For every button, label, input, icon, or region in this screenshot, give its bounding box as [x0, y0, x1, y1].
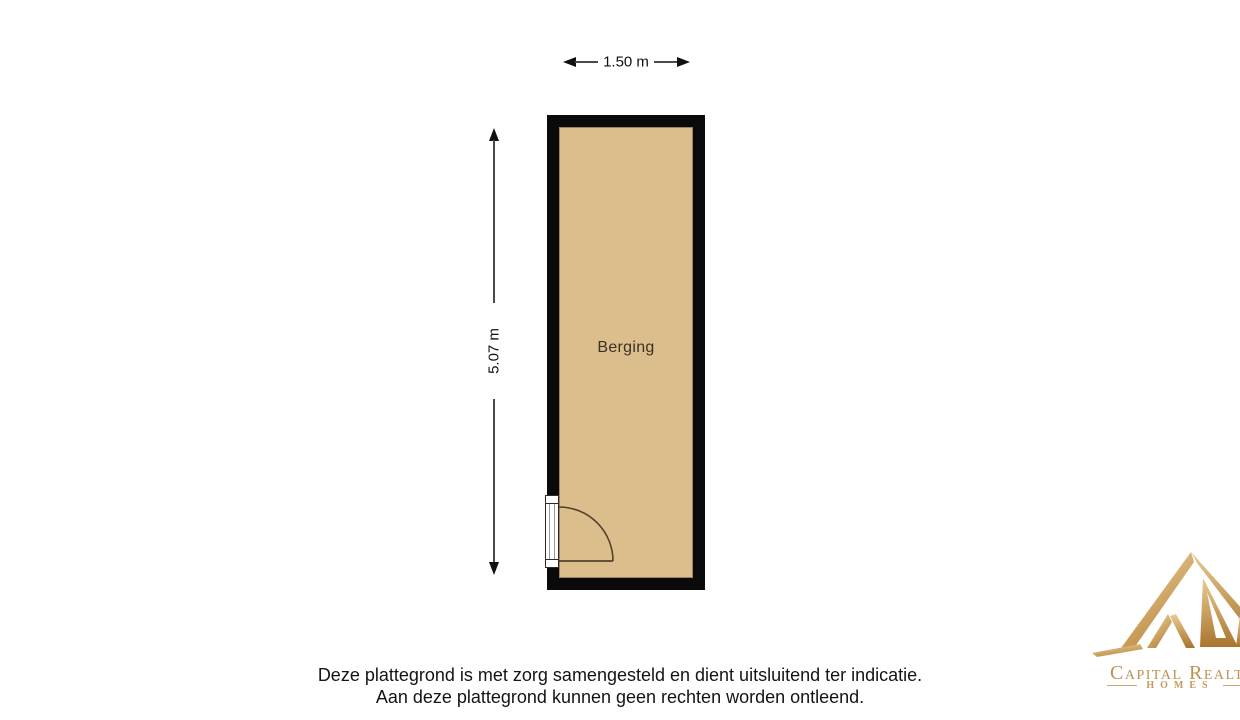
- dimension-arrow-down-icon: [489, 562, 499, 575]
- dimension-line-segment: [493, 399, 495, 562]
- dimension-line-segment: [575, 61, 598, 63]
- dimension-line-segment: [493, 140, 495, 303]
- door-frame-line: [549, 504, 550, 559]
- room-label: Berging: [597, 339, 654, 357]
- disclaimer-line-2: Aan deze plattegrond kunnen geen rechten…: [0, 686, 1240, 708]
- tagline-rule-left: [1107, 685, 1137, 686]
- brand-tagline-row: HOMES: [1095, 680, 1240, 691]
- disclaimer-line-1: Deze plattegrond is met zorg samengestel…: [0, 664, 1240, 686]
- door-frame-line: [554, 504, 555, 559]
- disclaimer: Deze plattegrond is met zorg samengestel…: [0, 664, 1240, 708]
- dimension-line-segment: [654, 61, 677, 63]
- floorplan-page: 1.50 m 5.07 m Berging Deze plattegrond i…: [0, 0, 1240, 720]
- width-dimension-label: 1.50 m: [603, 54, 649, 71]
- brand-logo: Capital Realties HOMES: [1080, 540, 1240, 710]
- brand-tagline: HOMES: [1146, 680, 1213, 691]
- door-frame-cap: [546, 496, 558, 504]
- height-dimension-label: 5.07 m: [486, 328, 503, 374]
- door-frame-cap: [546, 559, 558, 567]
- door-frame: [545, 495, 559, 568]
- mountain-logo-icon: [1080, 540, 1240, 660]
- dimension-arrow-right-icon: [677, 57, 690, 67]
- room-floor: Berging: [559, 127, 693, 578]
- tagline-rule-right: [1223, 685, 1240, 686]
